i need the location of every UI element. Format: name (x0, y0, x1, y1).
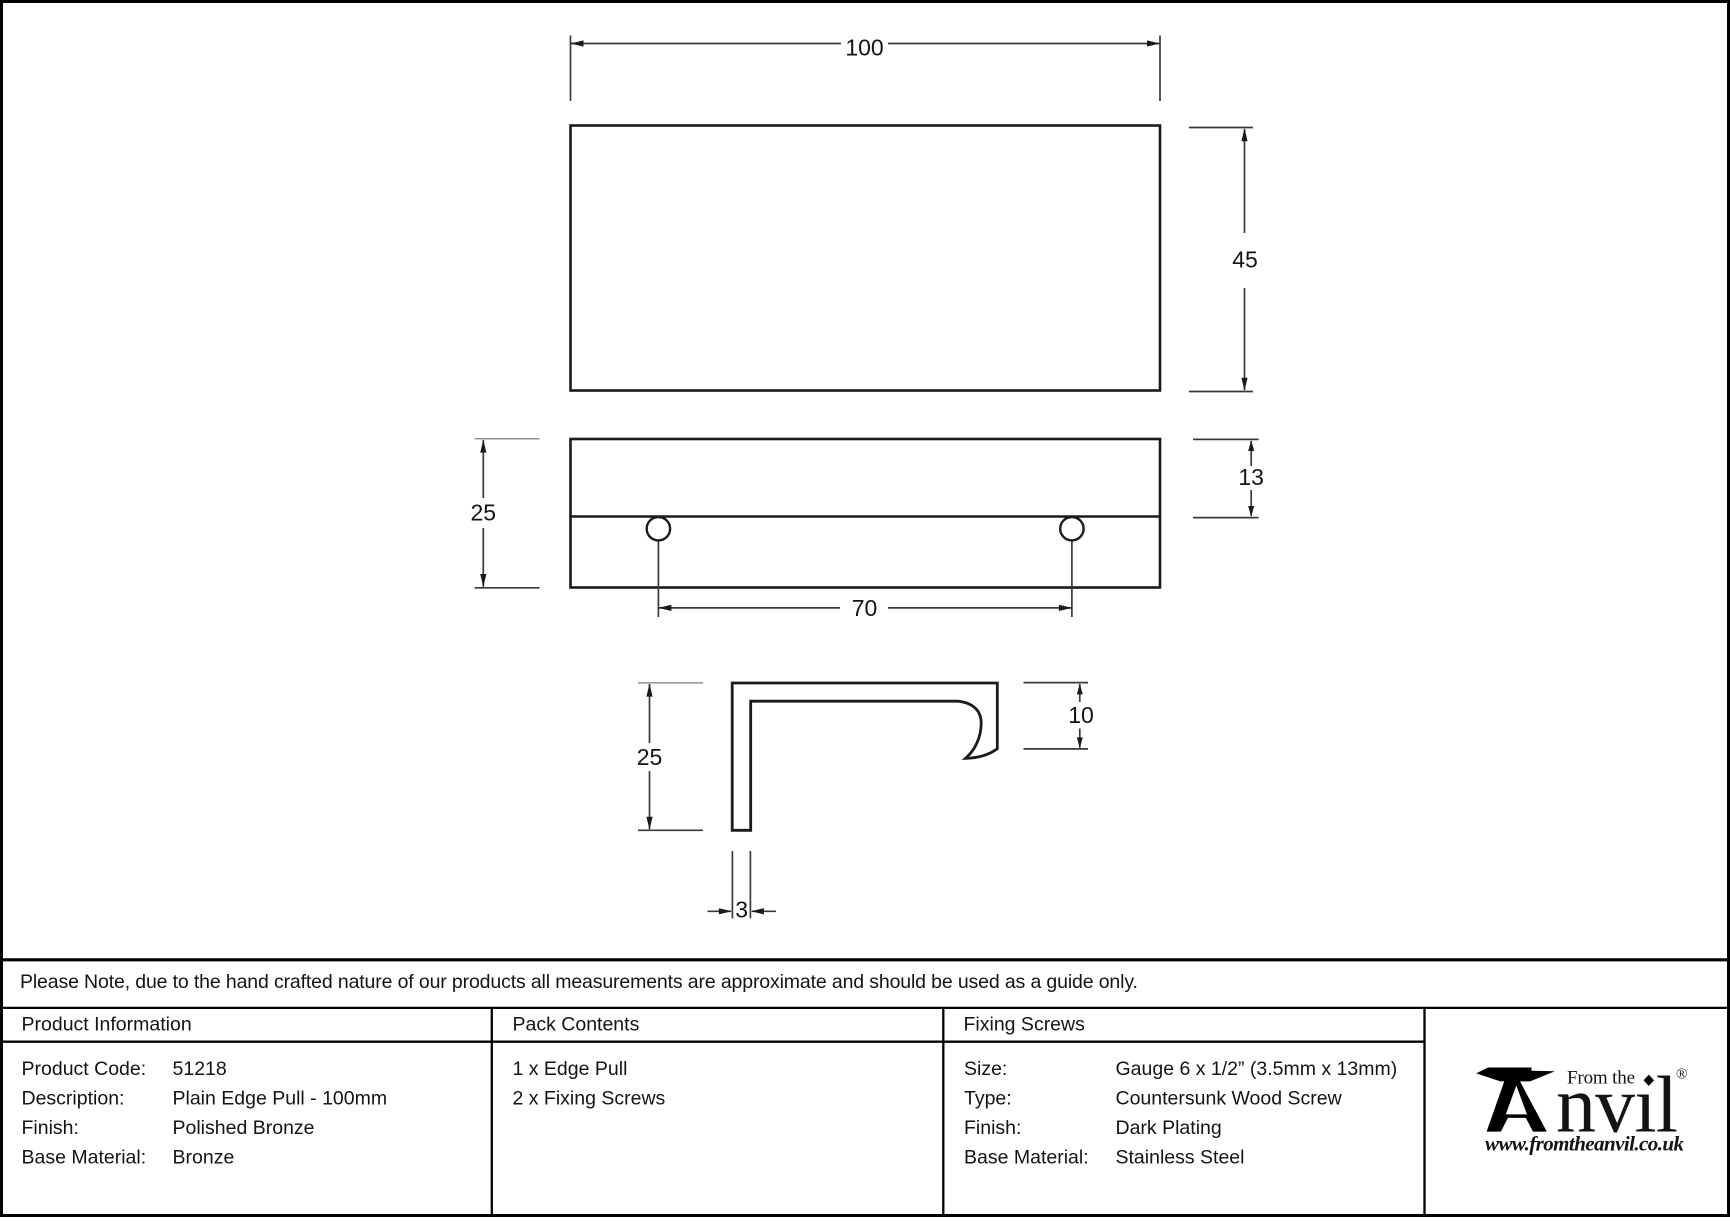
svg-text:Base Material:: Base Material: (22, 1147, 147, 1169)
svg-text:Finish:: Finish: (964, 1117, 1021, 1139)
svg-text:25: 25 (471, 500, 497, 526)
svg-text:Countersunk Wood Screw: Countersunk Wood Screw (1116, 1088, 1343, 1110)
svg-text:2 x Fixing Screws: 2 x Fixing Screws (513, 1088, 666, 1110)
svg-text:45: 45 (1232, 247, 1258, 273)
svg-text:3: 3 (735, 897, 748, 923)
svg-text:Base Material:: Base Material: (964, 1147, 1089, 1169)
svg-text:Product Information: Product Information (22, 1013, 192, 1035)
svg-text:Size:: Size: (964, 1058, 1007, 1080)
svg-text:Type:: Type: (964, 1088, 1012, 1110)
svg-text:Description:: Description: (22, 1088, 125, 1110)
svg-text:70: 70 (852, 595, 878, 621)
svg-text:1 x Edge Pull: 1 x Edge Pull (513, 1058, 628, 1080)
svg-text:Dark Plating: Dark Plating (1116, 1117, 1222, 1139)
svg-text:Product Code:: Product Code: (22, 1058, 147, 1080)
svg-text:51218: 51218 (173, 1058, 227, 1080)
svg-text:Finish:: Finish: (22, 1117, 79, 1139)
svg-text:10: 10 (1068, 702, 1094, 728)
svg-text:25: 25 (637, 744, 663, 770)
svg-text:www.fromtheanvil.co.uk: www.fromtheanvil.co.uk (1485, 1132, 1685, 1156)
svg-text:Stainless Steel: Stainless Steel (1116, 1147, 1245, 1169)
svg-text:Plain Edge Pull - 100mm: Plain Edge Pull - 100mm (173, 1088, 388, 1110)
svg-text:100: 100 (845, 34, 883, 60)
svg-text:Pack Contents: Pack Contents (513, 1013, 640, 1035)
svg-text:Polished Bronze: Polished Bronze (173, 1117, 315, 1139)
svg-text:Please Note, due to the hand c: Please Note, due to the hand crafted nat… (20, 971, 1138, 993)
svg-text:13: 13 (1238, 464, 1264, 490)
svg-text:Fixing Screws: Fixing Screws (964, 1013, 1086, 1035)
svg-text:Bronze: Bronze (173, 1147, 235, 1169)
svg-text:Gauge 6 x 1/2” (3.5mm x 13mm): Gauge 6 x 1/2” (3.5mm x 13mm) (1116, 1058, 1398, 1080)
svg-text:®: ® (1676, 1067, 1687, 1083)
